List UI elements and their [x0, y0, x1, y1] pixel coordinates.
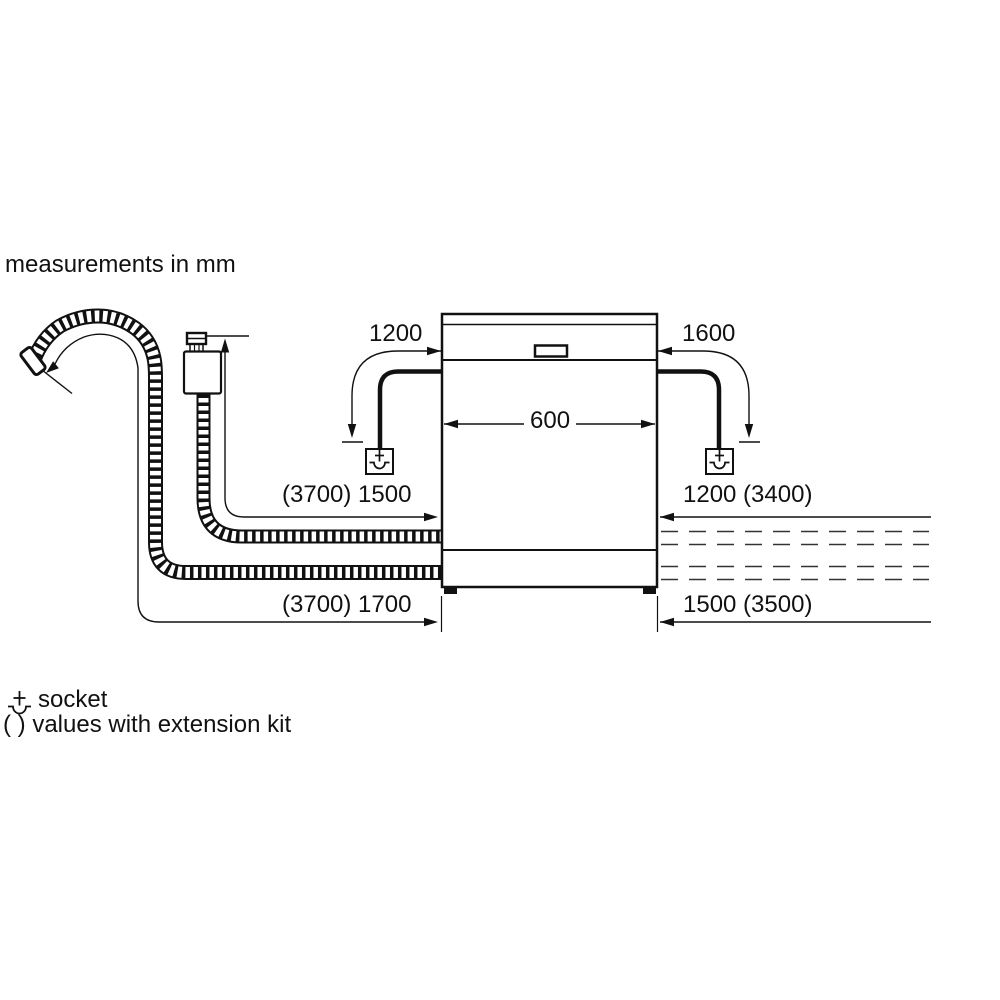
arrow-left — [660, 513, 674, 521]
dim-label-width: 600 — [524, 409, 576, 433]
arrow-right — [427, 347, 441, 355]
arrow-down — [745, 424, 753, 438]
power-cord-right — [656, 372, 719, 450]
dim-label-cord-left: 1200 — [369, 322, 422, 346]
power-cord-left — [380, 372, 443, 450]
arrow-left — [658, 347, 672, 355]
hose-extension-dashed-lines — [661, 532, 929, 580]
dim-label-right-lower: 1500 (3500) — [683, 593, 812, 617]
arrow-down — [348, 424, 356, 438]
foot-right — [643, 588, 656, 595]
arrow-right — [424, 618, 438, 626]
diagram-linework — [0, 0, 1000, 1000]
dim-label-right-upper: 1200 (3400) — [683, 483, 812, 507]
arrow-left — [660, 618, 674, 626]
dim-label-supply-hose: (3700) 1500 — [282, 483, 411, 507]
legend-socket-label: socket — [38, 688, 107, 712]
dishwasher-outline — [442, 314, 657, 594]
supply-hose — [204, 390, 445, 537]
arrow-right — [424, 513, 438, 521]
dim-right-lower — [660, 618, 931, 626]
dim-label-cord-right: 1600 — [682, 322, 735, 346]
installation-diagram: measurements in mm 1200 1600 600 (3700) … — [0, 0, 1000, 1000]
diagram-title: measurements in mm — [5, 253, 236, 277]
arrow-down-left — [46, 361, 59, 373]
dim-right-upper — [660, 513, 931, 521]
legend-extension-label: ( ) values with extension kit — [3, 713, 291, 737]
foot-left — [444, 588, 457, 595]
dim-cord-right — [658, 347, 760, 442]
dim-label-drain-hose: (3700) 1700 — [282, 593, 411, 617]
dim-cord-left — [342, 347, 441, 442]
door-handle — [535, 346, 567, 357]
socket-right — [706, 449, 733, 474]
socket-left — [366, 449, 393, 474]
aquastop-valve — [184, 333, 221, 394]
